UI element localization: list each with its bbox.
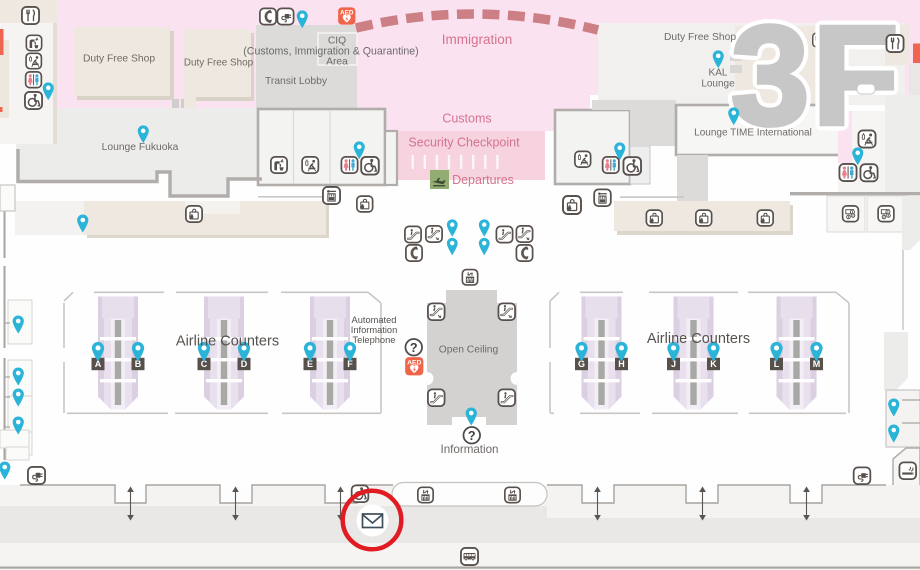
svg-text:Duty Free Shop: Duty Free Shop (664, 32, 736, 43)
svg-text:Area: Area (326, 57, 348, 68)
svg-text:Lounge TIME International: Lounge TIME International (694, 128, 812, 139)
svg-text:Duty Free Shop: Duty Free Shop (184, 58, 254, 69)
svg-text:Transit Lobby: Transit Lobby (265, 76, 328, 87)
svg-text:Telephone: Telephone (353, 335, 396, 345)
svg-text:Departures: Departures (452, 173, 514, 187)
svg-text:Customs: Customs (442, 112, 491, 126)
svg-text:Security Checkpoint: Security Checkpoint (408, 136, 520, 150)
svg-text:Lounge Fukuoka: Lounge Fukuoka (102, 142, 179, 153)
svg-text:KAL: KAL (709, 68, 728, 79)
svg-text:Airline Counters: Airline Counters (176, 334, 279, 350)
svg-text:Immigration: Immigration (442, 32, 513, 47)
svg-text:Automated: Automated (352, 315, 397, 325)
svg-text:Information: Information (351, 325, 398, 335)
svg-text:Information: Information (441, 443, 499, 456)
svg-text:Airline Counters: Airline Counters (647, 331, 750, 347)
svg-text:Duty Free Shop: Duty Free Shop (83, 54, 155, 65)
svg-text:Lounge: Lounge (701, 79, 735, 90)
svg-text:Open Ceiling: Open Ceiling (439, 345, 499, 356)
